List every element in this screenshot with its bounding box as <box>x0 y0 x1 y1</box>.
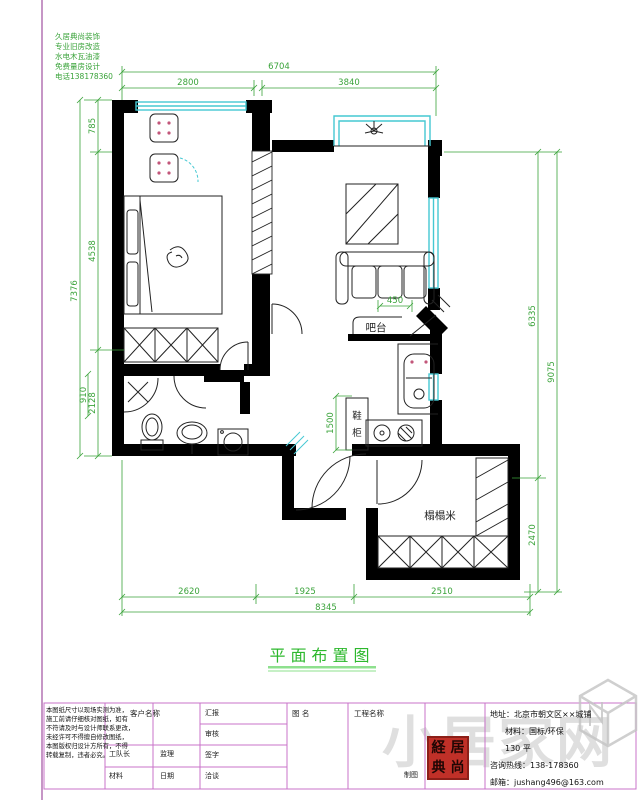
seal-char-1: 経 <box>432 741 446 755</box>
report-label: 汇报 <box>205 709 219 717</box>
dim-right-upper: 6335 <box>528 305 538 327</box>
windows <box>136 102 438 454</box>
project-name-label: 工程名称 <box>354 710 384 718</box>
stool-bottom <box>150 154 178 182</box>
dim-shoe-height: 1500 <box>326 412 336 434</box>
company-stamp: 久居典尚装饰 专业旧房改造 水电木瓦油漆 免费量房设计 电话138178360 <box>55 32 125 82</box>
stove <box>366 420 422 446</box>
client-name-label: 客户名称 <box>130 710 160 718</box>
negotiate-label: 洽谈 <box>205 772 219 780</box>
sign-label: 签字 <box>205 751 219 759</box>
label-bar: 吧台 <box>366 321 387 334</box>
date-label: 日期 <box>160 772 174 780</box>
label-tatami: 榻榻米 <box>424 509 456 522</box>
drawing-sheet: 小居家网 <box>0 0 640 800</box>
dim-bar-width: 450 <box>387 296 403 306</box>
dim-bottom-right: 2510 <box>431 587 453 597</box>
company-seal: 経 居 典 尚 <box>427 736 469 780</box>
drawing-title: 平面布置图 <box>268 646 376 671</box>
plan-title-text: 平面布置图 <box>269 646 374 665</box>
seal-char-3: 典 <box>432 761 446 775</box>
tatami-wardrobe <box>476 458 508 536</box>
bed <box>124 196 222 314</box>
bay-window <box>334 116 430 146</box>
dim-right-lower: 2470 <box>528 524 538 546</box>
flower-decor <box>167 247 188 267</box>
sofa <box>336 252 434 304</box>
contact-hotline: 咨询热线：138-178360 <box>490 761 579 771</box>
dim-right-total: 9075 <box>547 361 557 383</box>
dim-top-left: 2800 <box>177 78 199 88</box>
contact-material: 材料：国标/环保 <box>505 727 564 737</box>
label-shoe-2: 柜 <box>352 427 362 439</box>
stool-dots <box>157 121 170 174</box>
drawing-name-label: 图 名 <box>292 710 309 718</box>
bay-plant <box>365 121 383 134</box>
dim-left-bottom: 2128 <box>88 392 98 414</box>
dim-top-total: 6704 <box>268 62 290 72</box>
coffee-table <box>346 184 398 244</box>
sink-dots <box>410 360 427 363</box>
bathroom <box>124 378 248 455</box>
dim-left-mid: 4538 <box>88 240 98 262</box>
contact-area: 130 平 <box>505 744 531 754</box>
dim-left-total: 7376 <box>70 280 80 302</box>
wardrobe-niche <box>252 151 272 274</box>
dim-left-top: 785 <box>88 118 98 134</box>
seal-char-2: 居 <box>451 741 465 755</box>
seal-char-4: 尚 <box>451 761 465 775</box>
crew-leader-label: 工队长 <box>109 750 130 758</box>
title-underline <box>268 666 376 669</box>
audit-label: 审核 <box>205 730 219 738</box>
contact-email: 邮箱：jushang496@163.com <box>490 778 604 788</box>
stool-top <box>150 114 178 142</box>
dim-left-inner: 910 <box>79 387 89 403</box>
supervisor-label: 监理 <box>160 750 174 758</box>
dim-bottom-mid: 1925 <box>294 587 316 597</box>
bedroom-window <box>136 102 246 110</box>
material-label: 材料 <box>109 772 123 780</box>
shoe-cabinet <box>346 398 368 450</box>
bedroom-furniture <box>124 114 222 362</box>
label-shoe-1: 鞋 <box>352 410 362 422</box>
floor-plan-canvas: 6704 2800 3840 7376 785 4538 2128 910 63… <box>0 0 640 800</box>
tatami-closet <box>378 536 508 568</box>
contact-address: 地址：北京市朝文区××城铺 <box>490 710 591 720</box>
dim-top-right: 3840 <box>338 78 360 88</box>
walls <box>112 100 520 580</box>
dim-bottom-left: 2620 <box>178 587 200 597</box>
draft-label: 制图 <box>404 771 418 779</box>
shower-hatch <box>128 382 148 402</box>
bedroom-closet <box>124 328 218 362</box>
dim-bottom-total: 8345 <box>315 603 337 613</box>
